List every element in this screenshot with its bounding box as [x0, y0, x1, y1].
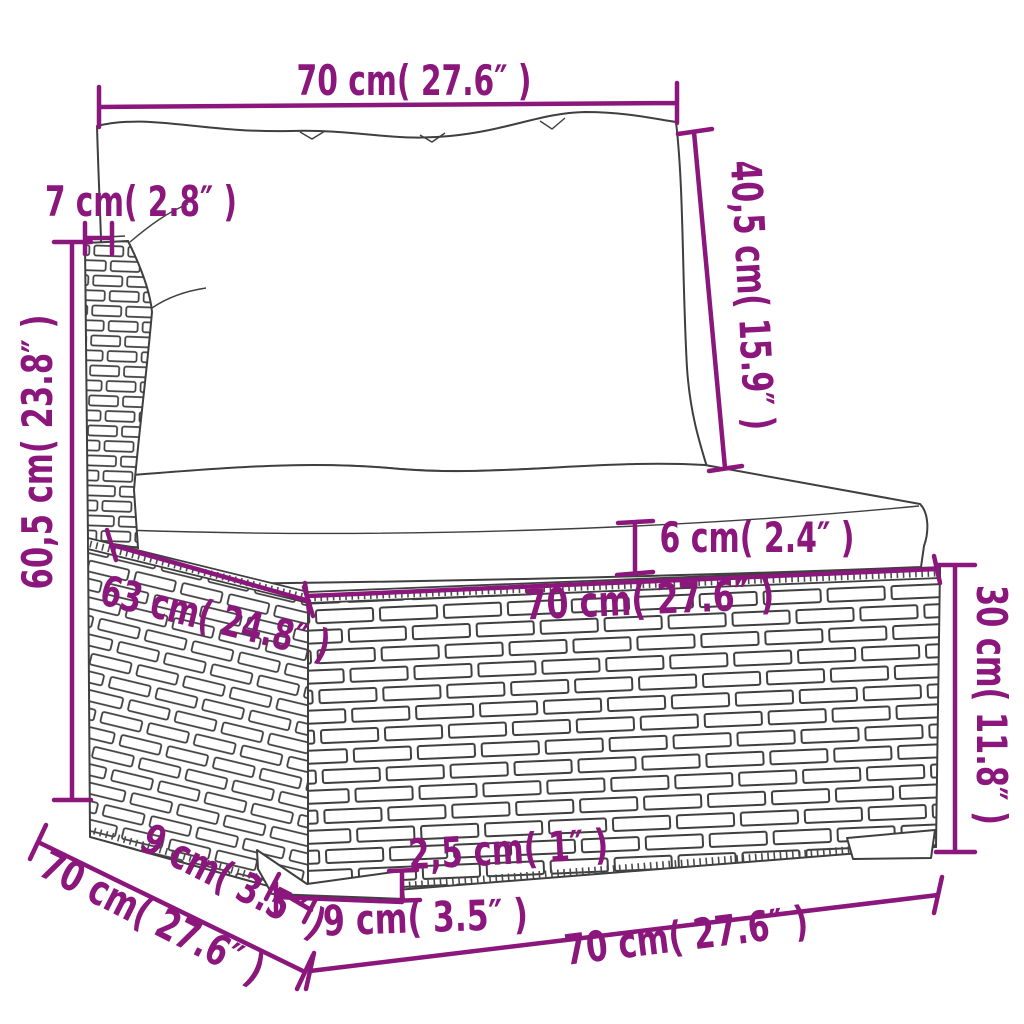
dim-total-height: 60,5 cm( 23.8″ ) [13, 242, 91, 800]
backrest-height-label: 40,5 cm( 15.9″ ) [721, 159, 784, 431]
base-width-label: 70 cm( 27.6″ ) [562, 896, 811, 974]
foot-height-label: 2,5 cm( 1″ ) [407, 820, 609, 879]
foot-width-label: 9 cm( 3.5″ ) [322, 889, 529, 945]
back-cushion [95, 112, 707, 478]
base-height-label: 30 cm( 11.8″ ) [967, 585, 1016, 825]
dim-base-height: 30 cm( 11.8″ ) [936, 565, 1016, 852]
diagram-canvas: 70 cm( 27.6″ ) 7 cm( 2.8″ ) 40,5 cm( 15.… [0, 0, 1024, 1024]
top-width-label: 70 cm( 27.6″ ) [297, 56, 532, 105]
cushion-thickness-label: 6 cm( 2.4″ ) [660, 513, 855, 562]
sofa-drawing [85, 112, 940, 899]
total-height-label: 60,5 cm( 23.8″ ) [13, 315, 62, 590]
backrest-depth-label: 7 cm( 2.8″ ) [45, 177, 237, 226]
product-dimension-diagram: 70 cm( 27.6″ ) 7 cm( 2.8″ ) 40,5 cm( 15.… [0, 0, 1024, 1024]
